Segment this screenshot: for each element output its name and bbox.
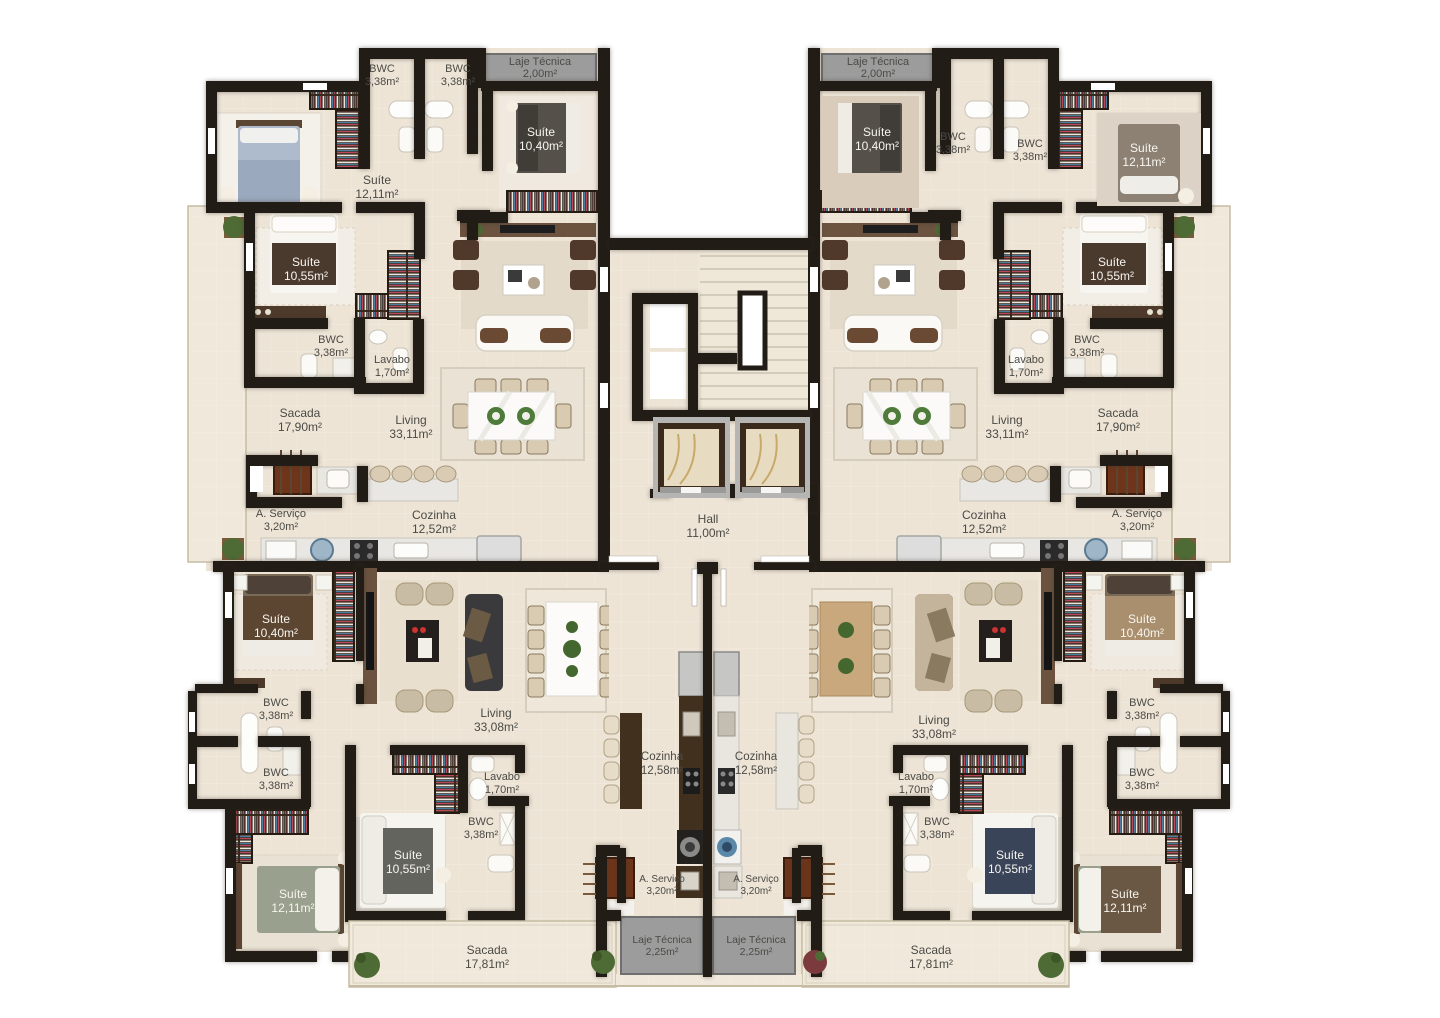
svg-text:Sacada17,81m²: Sacada17,81m² [909, 943, 953, 971]
svg-text:Living33,11m²: Living33,11m² [389, 413, 432, 441]
svg-text:Cozinha12,52m²: Cozinha12,52m² [412, 508, 456, 536]
svg-text:BWC3,38m²: BWC3,38m² [1013, 138, 1048, 163]
svg-text:Lavabo1,70m²: Lavabo1,70m² [1008, 354, 1044, 379]
svg-text:BWC3,38m²: BWC3,38m² [259, 767, 294, 792]
svg-text:BWC3,38m²: BWC3,38m² [936, 131, 971, 156]
svg-text:BWC3,38m²: BWC3,38m² [259, 697, 294, 722]
svg-text:Sacada17,90m²: Sacada17,90m² [1096, 406, 1140, 434]
svg-text:Lavabo1,70m²: Lavabo1,70m² [484, 771, 520, 796]
svg-text:Sacada17,81m²: Sacada17,81m² [465, 943, 509, 971]
svg-text:BWC3,38m²: BWC3,38m² [1125, 697, 1160, 722]
svg-text:BWC3,38m²: BWC3,38m² [365, 63, 400, 88]
svg-text:Lavabo1,70m²: Lavabo1,70m² [374, 354, 410, 379]
svg-text:BWC3,38m²: BWC3,38m² [314, 334, 349, 359]
svg-text:Living33,08m²: Living33,08m² [912, 713, 956, 741]
svg-text:BWC3,38m²: BWC3,38m² [920, 816, 955, 841]
svg-text:Lavabo1,70m²: Lavabo1,70m² [898, 771, 934, 796]
svg-text:BWC3,38m²: BWC3,38m² [464, 816, 499, 841]
svg-text:Living33,08m²: Living33,08m² [474, 706, 518, 734]
svg-text:Living33,11m²: Living33,11m² [985, 413, 1028, 441]
svg-text:BWC3,38m²: BWC3,38m² [441, 63, 476, 88]
svg-text:Sacada17,90m²: Sacada17,90m² [278, 406, 322, 434]
svg-text:Cozinha12,52m²: Cozinha12,52m² [962, 508, 1006, 536]
svg-text:BWC3,38m²: BWC3,38m² [1070, 334, 1105, 359]
svg-text:BWC3,38m²: BWC3,38m² [1125, 767, 1160, 792]
